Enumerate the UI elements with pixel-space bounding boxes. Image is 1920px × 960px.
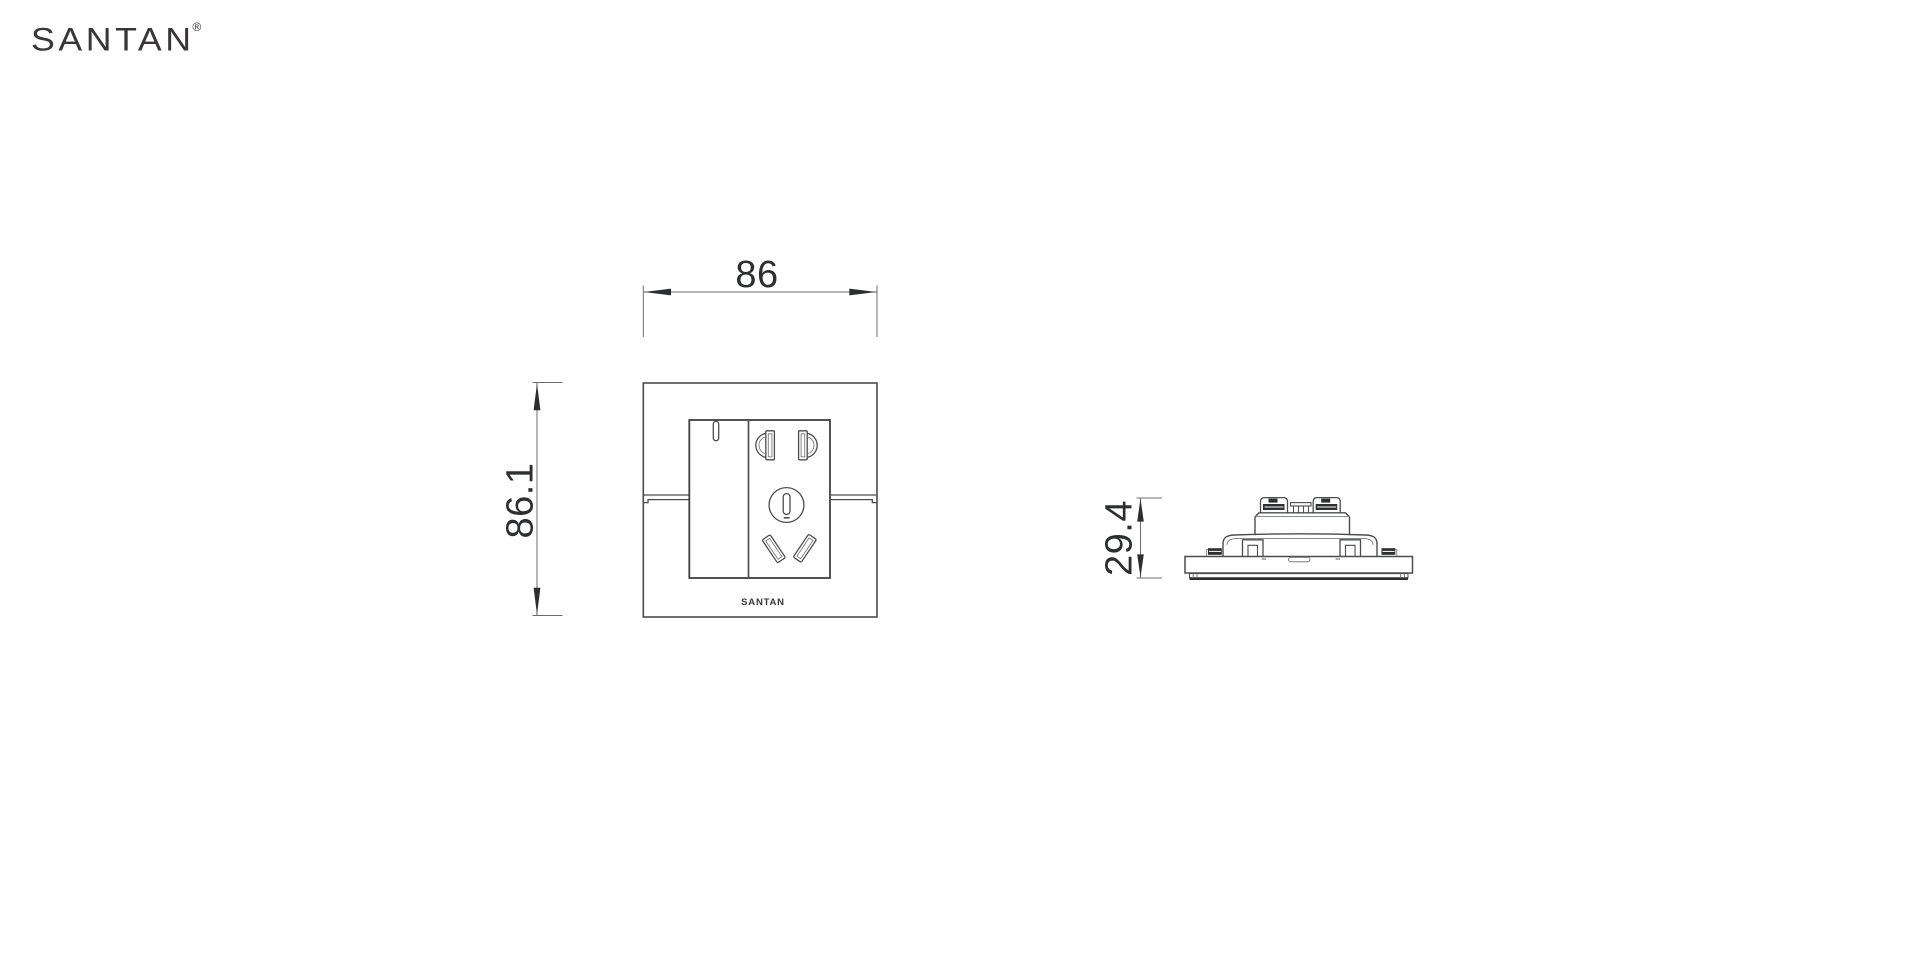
- canvas: SANTAN®: [0, 0, 1920, 960]
- arrowhead-bottom: [534, 588, 541, 615]
- dimension-value-depth: 29.4: [1099, 500, 1141, 576]
- dimension-front-width: 86: [643, 254, 877, 337]
- side-view: [1185, 498, 1413, 580]
- terminal-block-left: [1261, 498, 1288, 513]
- socket-two-pin-opening-left: [756, 431, 775, 460]
- module-frame: [689, 420, 830, 578]
- base-plate-center-mark: [1289, 557, 1311, 561]
- switch-module-box: [1255, 513, 1350, 535]
- clip-tab-left: [1207, 548, 1222, 556]
- plate-brand-text: SANTAN: [741, 597, 785, 608]
- switch-indicator-slot: [713, 421, 718, 440]
- mounting-claw-left: [1243, 540, 1264, 557]
- clip-tab-right: [1382, 548, 1397, 556]
- technical-drawing: SANTAN 86 86.1: [0, 0, 1920, 960]
- dimension-value-width: 86: [735, 254, 778, 296]
- socket-earth-slot: [783, 494, 790, 515]
- dimension-front-height: 86.1: [500, 383, 563, 616]
- socket-two-pin-opening-right: [799, 431, 818, 460]
- socket-pin-slot-bottom-left: [762, 535, 785, 563]
- dimension-side-depth: 29.4: [1099, 498, 1163, 578]
- socket-pin-slot-bottom-right: [793, 534, 816, 562]
- arrowhead-top: [534, 383, 541, 410]
- mounting-claw-right: [1340, 540, 1361, 557]
- plate-seam-left: [643, 495, 689, 503]
- panel-edge-strip: [1190, 574, 1409, 580]
- socket-earth-circle: [769, 488, 804, 523]
- dimension-value-height: 86.1: [500, 463, 542, 539]
- front-view: SANTAN: [643, 383, 877, 617]
- plate-seam-right: [831, 495, 877, 503]
- base-plate: [1185, 557, 1413, 574]
- terminal-bridge: [1291, 503, 1312, 513]
- terminal-block-right: [1313, 498, 1340, 513]
- arrowhead-left: [644, 289, 671, 296]
- arrowhead-right: [849, 289, 876, 296]
